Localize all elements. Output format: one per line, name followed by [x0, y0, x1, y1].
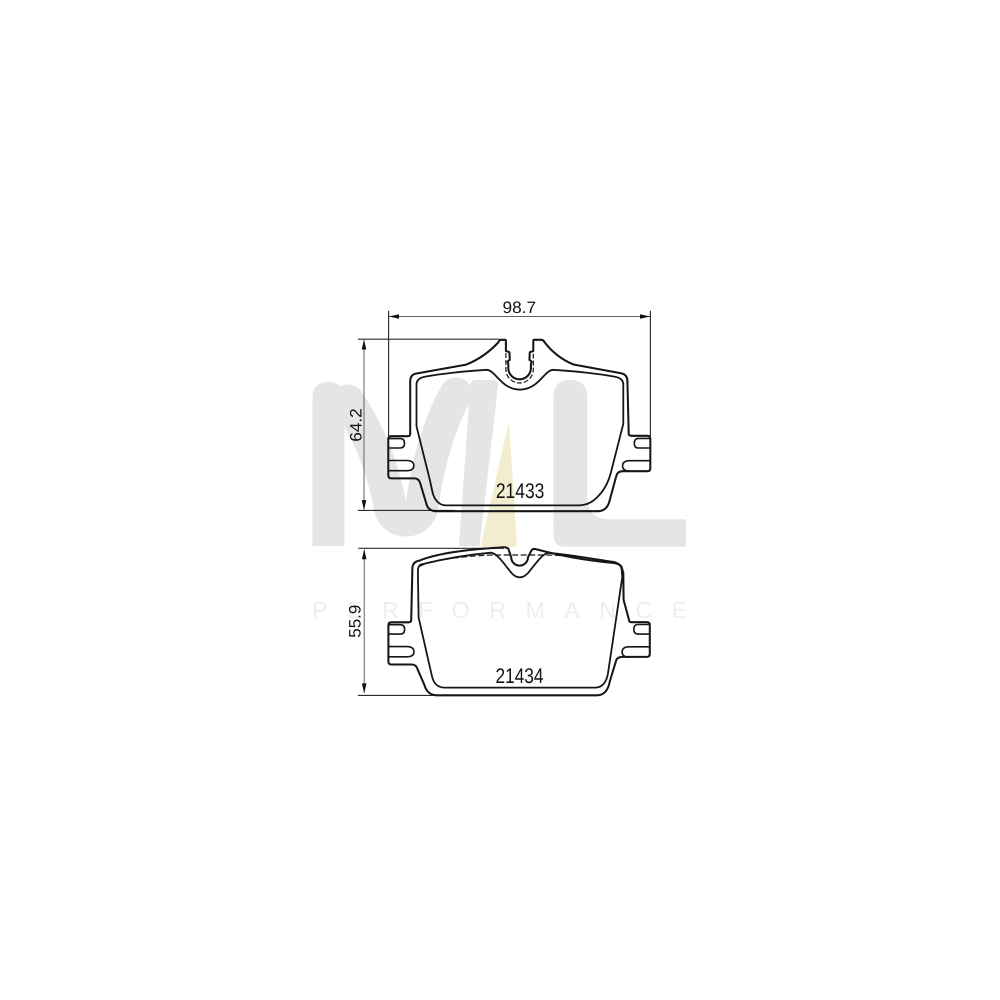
svg-text:21434: 21434 — [496, 665, 544, 688]
svg-text:55.9: 55.9 — [345, 605, 364, 638]
svg-text:PERFORMANCE: PERFORMANCE — [312, 597, 707, 623]
svg-text:21433: 21433 — [496, 480, 545, 503]
svg-text:98.7: 98.7 — [503, 298, 537, 317]
svg-text:64.2: 64.2 — [347, 408, 366, 442]
